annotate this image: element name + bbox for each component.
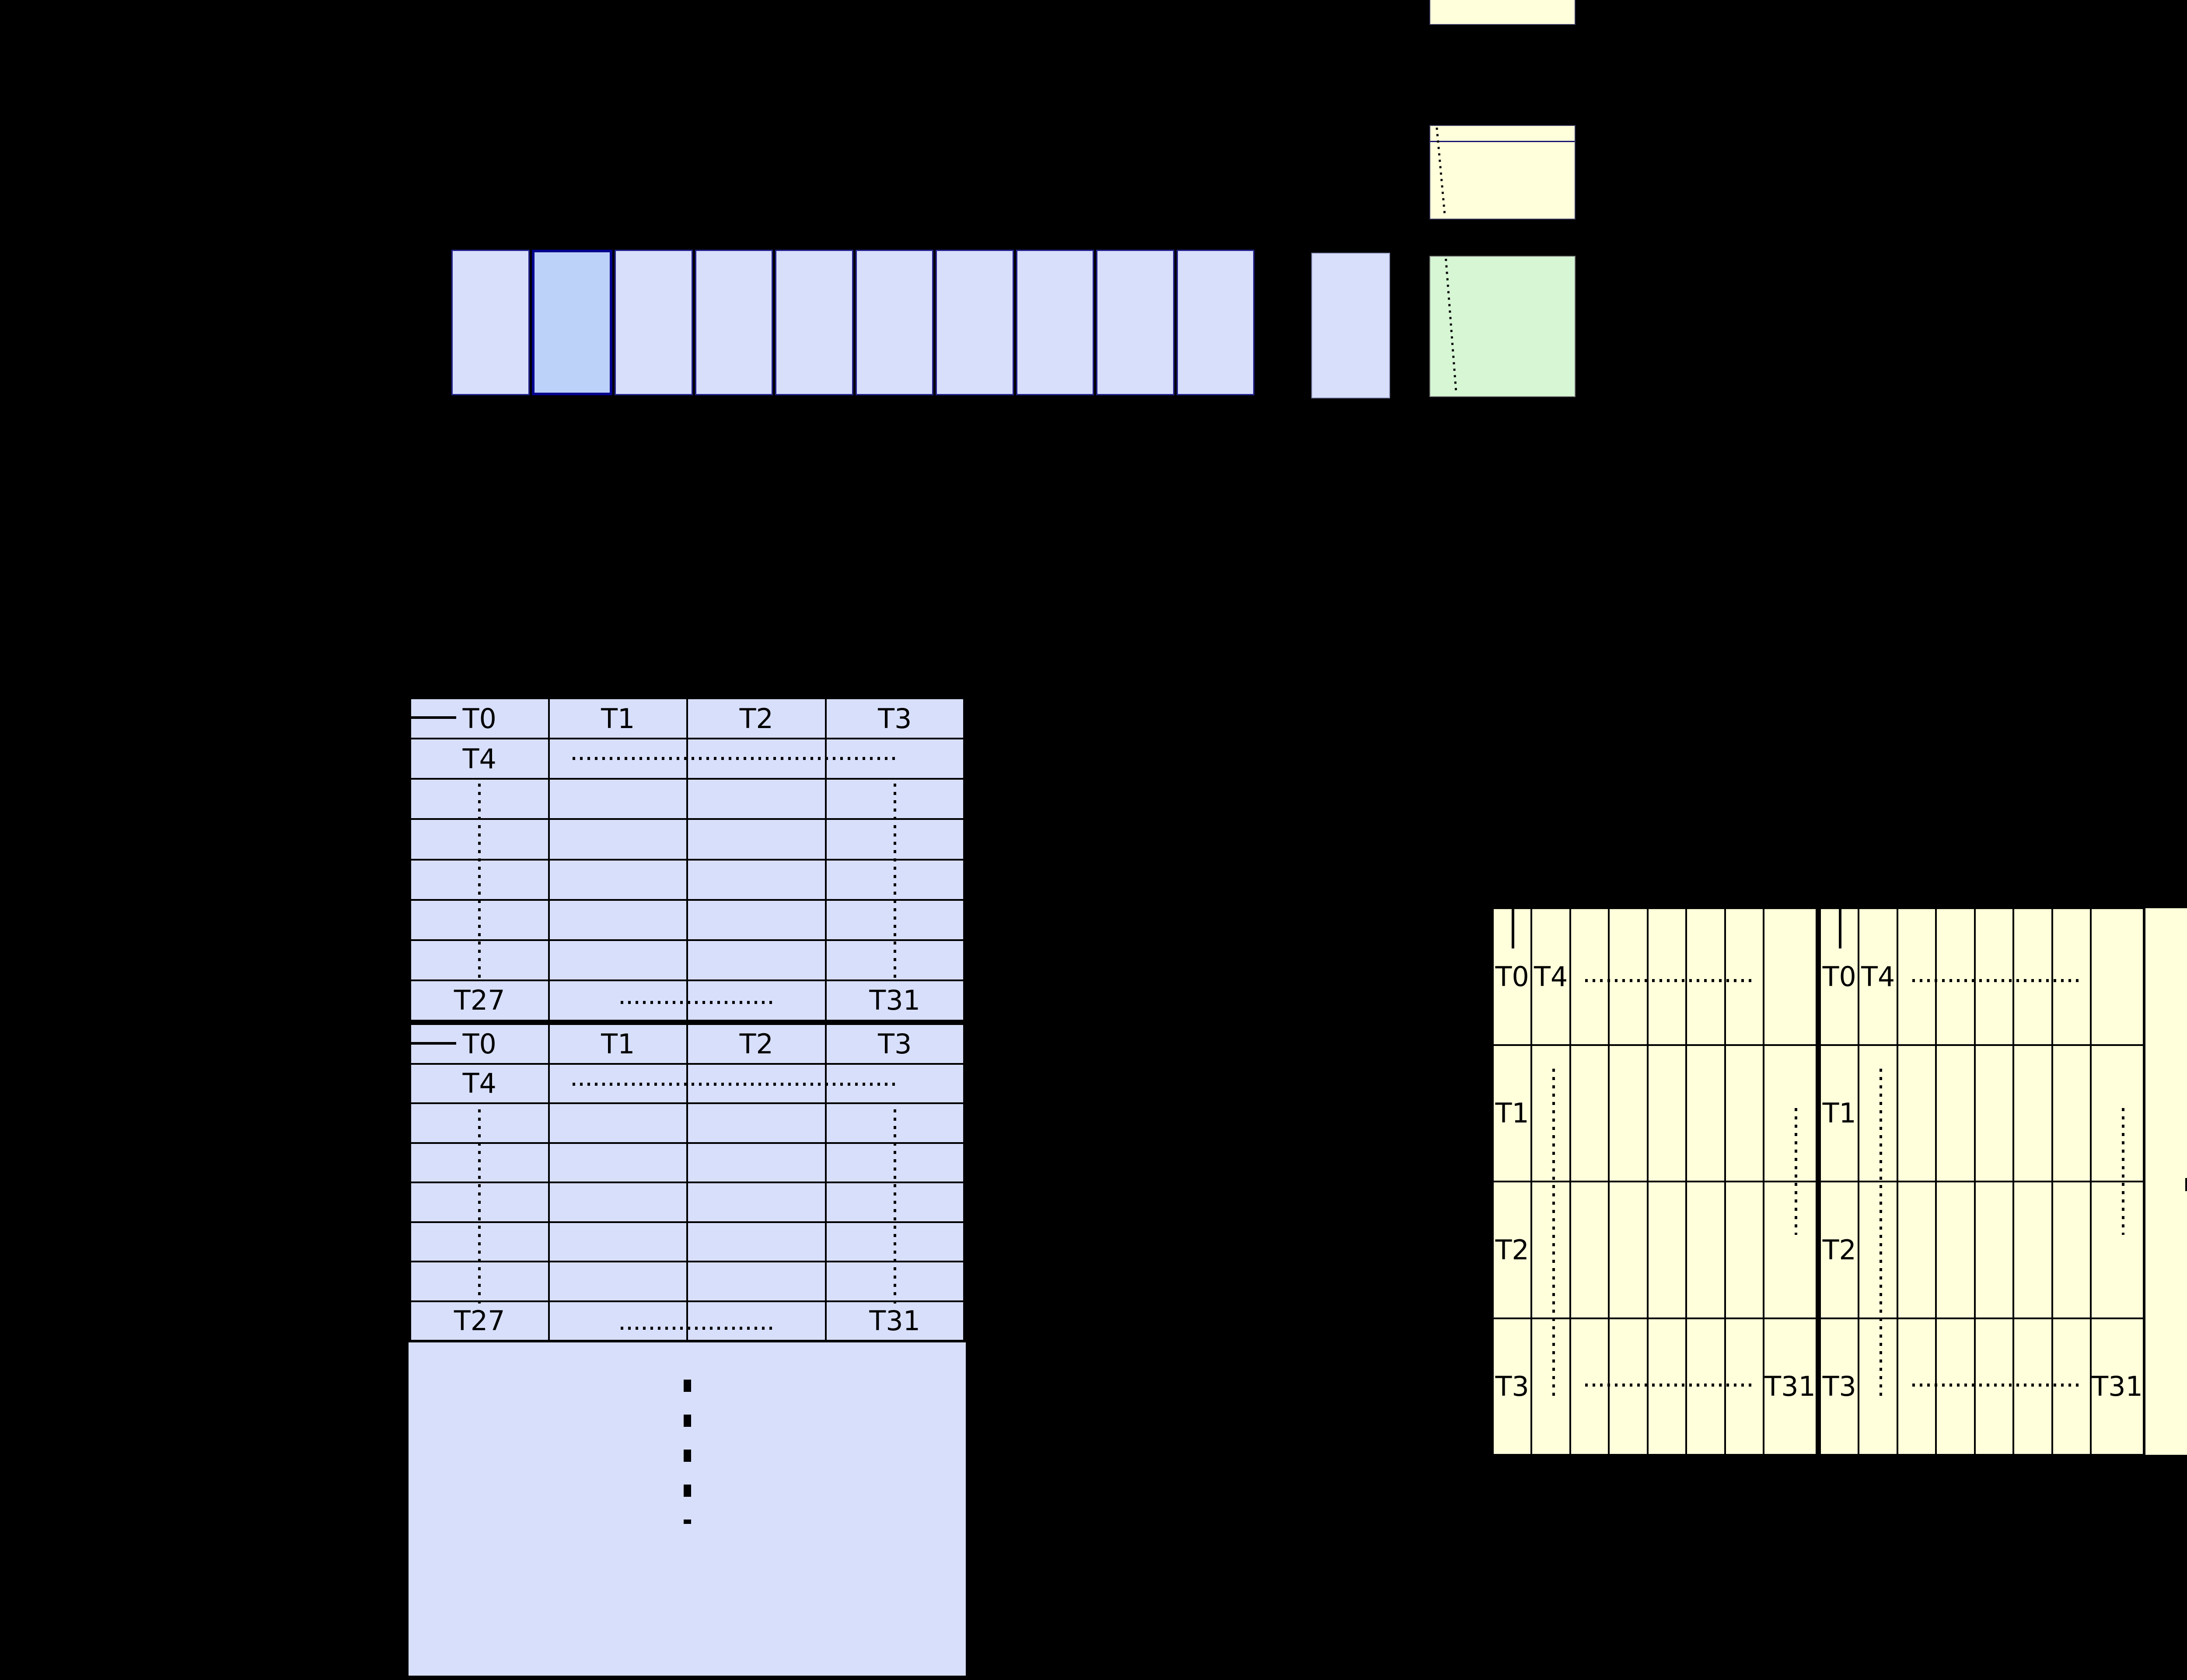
thread-label-cell: T1 <box>1820 1045 1859 1182</box>
right-table-cell <box>2091 1182 2144 1318</box>
right-table-cell <box>1570 908 1609 1045</box>
memory-box <box>695 250 773 395</box>
memory-box <box>775 250 853 395</box>
right-table-cell <box>1648 1045 1686 1182</box>
right-table-continuation <box>2145 906 2187 1457</box>
thread-label-cell: T1 <box>549 698 688 739</box>
row-dots <box>573 1083 898 1086</box>
thread-label-cell: T27 <box>410 980 549 1021</box>
memory-box <box>1016 250 1094 395</box>
right-table-cell <box>1936 1045 1974 1182</box>
column-tick <box>1839 908 1841 948</box>
right-table-cell <box>1764 908 1817 1045</box>
dotted-slant-line <box>1430 257 1575 396</box>
row-dots <box>621 1327 776 1330</box>
thread-label-cell: T31 <box>1764 1318 1817 1455</box>
memory-box <box>451 250 530 395</box>
right-table-cell <box>1570 1182 1609 1318</box>
column-dots <box>1795 1108 1797 1235</box>
right-table-cell <box>1725 1182 1764 1318</box>
right-table-cell <box>1531 1318 1570 1455</box>
right-table-cell <box>1686 908 1725 1045</box>
right-table-cell <box>2052 1045 2091 1182</box>
left-table-cell <box>687 1143 826 1183</box>
column-dots <box>2122 1108 2124 1235</box>
right-table-cell <box>1648 1182 1686 1318</box>
side-box <box>1311 253 1390 398</box>
column-dots <box>1880 1069 1882 1397</box>
left-table-cell <box>687 1182 826 1222</box>
left-table-cell <box>549 1103 688 1143</box>
right-thread-table: T0T4T1T2T3T31T0T4T1T2T3T31 <box>1491 906 2187 1457</box>
thread-label-cell: T2 <box>1493 1182 1531 1318</box>
column-dots <box>894 1109 896 1306</box>
left-table-cell <box>549 980 688 1021</box>
thread-label-cell: T1 <box>1493 1045 1531 1182</box>
left-table-cell <box>687 819 826 859</box>
thread-label-cell: T4 <box>1859 908 1897 1045</box>
left-table-cell <box>687 1103 826 1143</box>
right-table-cell <box>2091 908 2144 1045</box>
row-dots <box>1912 979 2083 982</box>
memory-box <box>936 250 1014 395</box>
right-table-cell <box>2091 1045 2144 1182</box>
left-table-cell <box>549 779 688 819</box>
dotted-slant-line <box>1430 126 1575 219</box>
thread-label-cell: T31 <box>826 1301 964 1341</box>
left-table-cell <box>549 1222 688 1262</box>
right-table-cell <box>2013 1182 2052 1318</box>
right-table-block: T0T4T1T2T3T31 <box>1818 906 2145 1457</box>
left-table-block: T0T1T2T3T4T27T31 <box>409 697 966 1022</box>
left-table-cell <box>549 1262 688 1301</box>
right-table-cell <box>1764 1045 1817 1182</box>
left-table-cell <box>687 1262 826 1301</box>
memory-box <box>1096 250 1174 395</box>
left-table-cell <box>687 860 826 900</box>
right-table-cell <box>1975 1045 2013 1182</box>
thread-label-cell: T3 <box>826 1024 964 1064</box>
right-table-cell <box>1897 1045 1936 1182</box>
memory-box-highlighted <box>532 250 613 395</box>
right-table-cell <box>1936 908 1974 1045</box>
right-table-cell <box>1570 1045 1609 1182</box>
left-table-continuation <box>409 1342 966 1676</box>
left-table-cell <box>687 779 826 819</box>
right-table-cell <box>1859 1045 1897 1182</box>
diagram-canvas: T0T1T2T3T4T27T31T0T1T2T3T4T27T31 T0T4T1T… <box>0 0 2187 1680</box>
left-table-cell <box>687 940 826 980</box>
header-tick <box>410 1042 456 1045</box>
left-table-cell <box>687 900 826 940</box>
horizontal-ellipsis-icon <box>2185 1178 2187 1191</box>
memory-box <box>615 250 693 395</box>
right-table-cell <box>1859 1182 1897 1318</box>
right-table-cell <box>1531 1045 1570 1182</box>
right-table-cell <box>1725 908 1764 1045</box>
thread-label-cell: T4 <box>410 1064 549 1104</box>
right-table-cell <box>1764 1182 1817 1318</box>
right-table-cell <box>1609 1182 1647 1318</box>
column-dots <box>894 784 896 980</box>
left-table-cell <box>549 1182 688 1222</box>
right-table-cell <box>1609 1045 1647 1182</box>
yellow-box-top <box>1429 0 1576 25</box>
thread-label-cell: T2 <box>687 698 826 739</box>
left-table-cell <box>549 860 688 900</box>
left-table-cell <box>549 1143 688 1183</box>
right-table-cell <box>2052 908 2091 1045</box>
right-table-cell <box>1897 1182 1936 1318</box>
row-dots <box>621 1001 776 1004</box>
right-table-cell <box>1609 908 1647 1045</box>
right-table-cell <box>1531 1182 1570 1318</box>
thread-label-cell: T3 <box>1820 1318 1859 1455</box>
thread-label-cell: T3 <box>826 698 964 739</box>
right-table-cell <box>2052 1182 2091 1318</box>
thread-label-cell: T2 <box>687 1024 826 1064</box>
thread-label-cell: T2 <box>1820 1182 1859 1318</box>
left-table-cell <box>687 1301 826 1341</box>
left-table-cell <box>549 1301 688 1341</box>
row-dots <box>1585 979 1756 982</box>
header-tick <box>410 716 456 719</box>
green-box <box>1429 256 1576 397</box>
memory-box <box>1177 250 1255 395</box>
row-dots <box>1912 1384 2083 1387</box>
right-table-block: T0T4T1T2T3T31 <box>1491 906 1818 1457</box>
right-table-cell <box>1686 1045 1725 1182</box>
right-table-cell <box>2013 1045 2052 1182</box>
column-tick <box>1512 908 1514 948</box>
column-dots <box>478 1109 481 1306</box>
thread-label-cell: T31 <box>2091 1318 2144 1455</box>
row-dots <box>573 757 898 760</box>
thread-label-cell: T4 <box>410 739 549 779</box>
right-table-cell <box>1936 1182 1974 1318</box>
row-dots <box>1585 1384 1756 1387</box>
left-thread-table: T0T1T2T3T4T27T31T0T1T2T3T4T27T31 <box>409 697 966 1342</box>
yellow-box-middle <box>1429 125 1576 220</box>
box-row <box>451 250 1254 395</box>
thread-label-cell: T4 <box>1531 908 1570 1045</box>
right-table-cell <box>1975 1182 2013 1318</box>
thread-label-cell: T1 <box>549 1024 688 1064</box>
thread-label-cell: T31 <box>826 980 964 1021</box>
memory-box <box>856 250 934 395</box>
right-table-cell <box>1897 908 1936 1045</box>
thread-label-cell: T3 <box>1493 1318 1531 1455</box>
left-table-cell <box>687 1222 826 1262</box>
right-table-cell <box>1648 908 1686 1045</box>
right-table-cell <box>1859 1318 1897 1455</box>
left-table-cell <box>549 940 688 980</box>
right-table-cell <box>1725 1045 1764 1182</box>
right-table-cell <box>1686 1182 1725 1318</box>
left-table-cell <box>687 980 826 1021</box>
left-table-cell <box>549 819 688 859</box>
right-table-cell <box>1975 908 2013 1045</box>
column-dots <box>478 784 481 980</box>
left-table-block: T0T1T2T3T4T27T31 <box>409 1022 966 1342</box>
right-table-cell <box>2013 908 2052 1045</box>
thread-label-cell: T27 <box>410 1301 549 1341</box>
vertical-ellipsis-icon <box>684 1380 691 1524</box>
left-table-cell <box>549 900 688 940</box>
column-dots <box>1552 1069 1555 1397</box>
